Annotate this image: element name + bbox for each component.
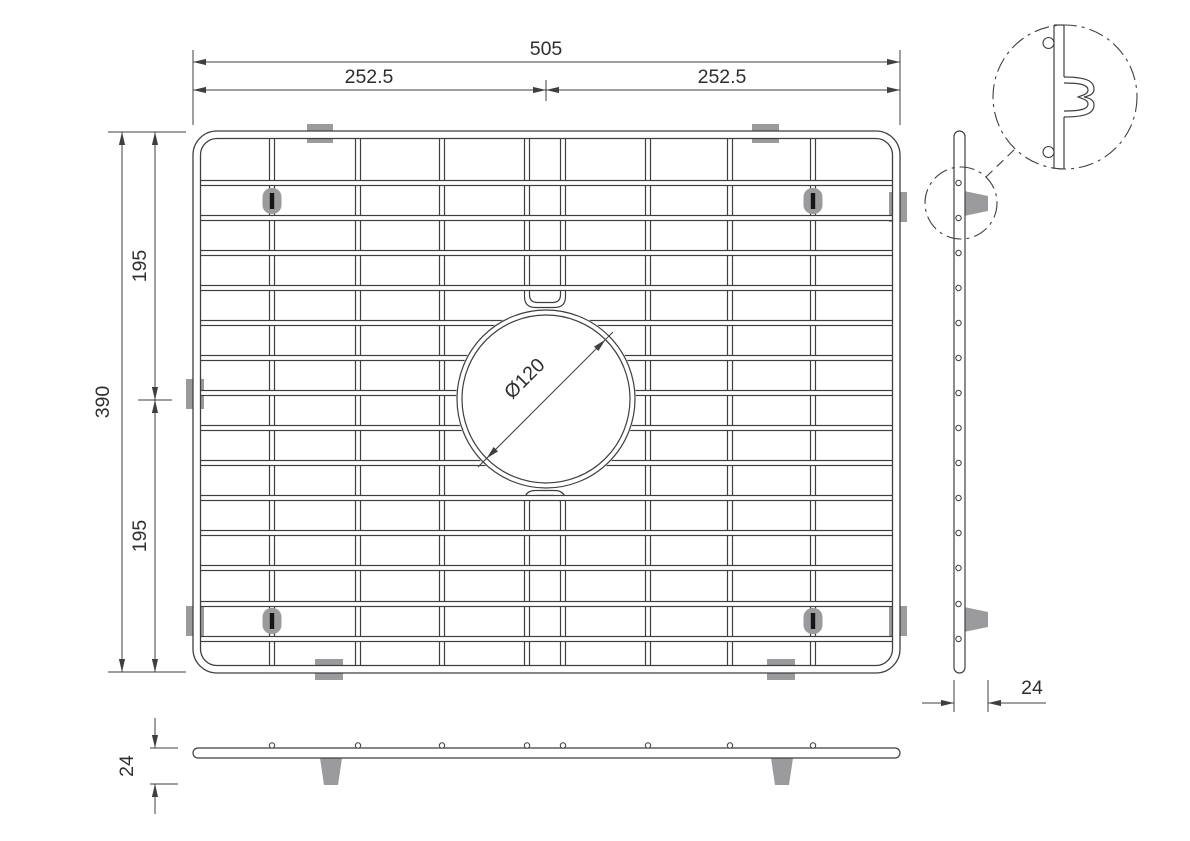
dimension-arrowhead [988,700,1001,706]
drawing-svg: 505 252.5 252.5 390 195 195 Ø120 24 24 [0,0,1190,841]
dimension-arrowhead [119,132,125,145]
vertical-wire [440,134,445,670]
fastener-slot [811,193,815,209]
wire-cross-section-dot [524,743,529,748]
grid-front-view [193,743,900,785]
horizontal-wire [196,216,897,221]
wire-cross-section-dot [645,743,650,748]
wire-cross-section-dot [956,285,961,290]
dimension-arrowhead [887,87,900,93]
dim-label-side-depth: 24 [1021,677,1043,699]
dimension-arrowhead [152,132,158,145]
wire-cross-section-dot [956,215,961,220]
dimension-arrowhead [119,659,125,672]
vertical-wire [270,134,275,670]
dimension-arrowhead [546,87,559,93]
grid-top-view [186,124,907,680]
dimension-arrowhead [193,59,206,65]
dimension-arrowhead [152,784,158,797]
vertical-wire [728,134,733,670]
vertical-wire [811,134,816,670]
vertical-wire [646,134,651,670]
fastener-slot [270,193,274,209]
dimension-arrowhead [152,400,158,413]
front-foot [771,758,793,785]
dimension-arrowhead [533,87,546,93]
wire-cross-section-dot [956,530,961,535]
detail-zoom-circle [993,25,1137,169]
horizontal-wire [196,531,897,536]
dimension-arrowhead [193,87,206,93]
side-foot [964,191,988,216]
dim-label-half-width-right: 252.5 [698,66,747,88]
wire-cross-section-dot [956,601,961,606]
wire-cross-section-dot [439,743,444,748]
horizontal-wire [196,286,897,291]
wire-cross-section-dot [727,743,732,748]
wire-cross-section-dot [956,320,961,325]
horizontal-wire [196,496,897,501]
wire-cross-section-dot [956,180,961,185]
dimension-arrowhead [152,659,158,672]
wire-cross-section-dot [956,565,961,570]
fastener-slot [811,613,815,629]
horizontal-wire [196,566,897,571]
wire-cross-section-dot [560,743,565,748]
dim-label-half-height-top: 195 [129,250,151,283]
wire-cross-section-dot [956,390,961,395]
wire-cross-section-dot [956,425,961,430]
wire-cross-section-dot [956,250,961,255]
side-strip [954,131,965,673]
horizontal-wire [196,637,897,642]
dimension-arrowhead [152,735,158,748]
hairpin-wire-fill [525,491,566,674]
dim-label-half-width-left: 252.5 [345,66,394,88]
horizontal-wire [196,181,897,186]
dim-label-total-height: 390 [92,386,114,419]
horizontal-wire [196,602,897,607]
vertical-wire [356,134,361,670]
detail-leader-line [986,149,1015,177]
fastener-slot [270,613,274,629]
detail-wire-dot [1043,147,1054,158]
dimension-arrowhead [887,59,900,65]
wire-cross-section-dot [269,743,274,748]
wire-cross-section-dot [956,636,961,641]
dim-label-front-height: 24 [116,755,138,777]
detail-wire-dot [1043,38,1054,49]
wire-cross-section-dot [956,460,961,465]
grid-side-view [954,131,988,673]
wire-cross-section-dot [956,355,961,360]
wire-cross-section-dot [355,743,360,748]
dimension-arrowhead [152,387,158,400]
dim-label-total-width: 505 [530,38,563,60]
wire-cross-section-dot [956,495,961,500]
front-foot [320,758,342,785]
dimension-arrowhead [941,700,954,706]
front-strip [193,748,900,758]
side-foot [964,607,988,632]
horizontal-wire [196,251,897,256]
technical-drawing-canvas: 505 252.5 252.5 390 195 195 Ø120 24 24 [0,0,1190,841]
dim-label-half-height-bottom: 195 [129,520,151,553]
wire-cross-section-dot [810,743,815,748]
